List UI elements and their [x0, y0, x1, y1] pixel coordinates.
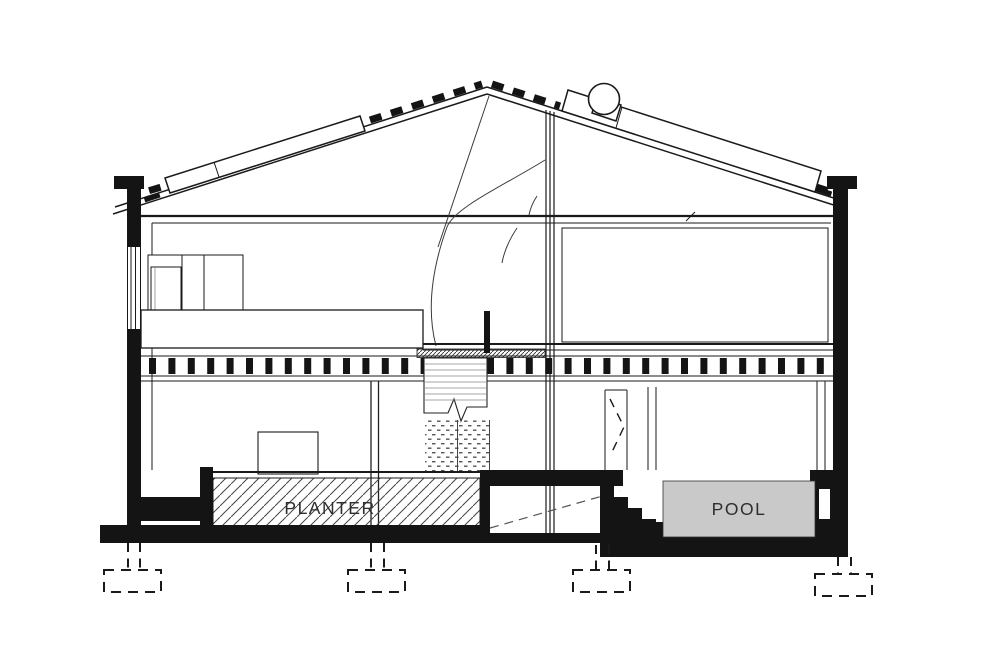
roof-left-bottom-chord: [113, 94, 487, 214]
pile-4: [815, 557, 872, 596]
skylight-panel-left: [165, 116, 365, 193]
balustrade-post: [484, 311, 490, 353]
wardrobe-door: [151, 267, 181, 310]
left-parapet-cap: [114, 176, 144, 189]
curve-small-arc: [502, 228, 517, 263]
pile-2: [348, 543, 405, 592]
right-parapet-cap: [827, 176, 857, 189]
door-swing-dashed: [610, 399, 624, 456]
upper-right-window: [562, 228, 828, 342]
pool: POOL: [600, 470, 838, 557]
pit-top-band: [480, 470, 623, 486]
chimney-cap: [589, 84, 620, 115]
curve-small-arc-upper: [529, 196, 537, 215]
pool-label: POOL: [712, 499, 767, 519]
skylight-panels: [144, 90, 832, 202]
pool-wall-notch: [819, 489, 830, 519]
slab: [100, 525, 645, 543]
left-wall: [127, 189, 141, 543]
right-wall: [833, 189, 848, 557]
landing-slab-hatch: [417, 349, 545, 358]
floor-edge-band: [141, 310, 423, 348]
left-footing-beam: [141, 497, 201, 521]
planter-label: PLANTER: [284, 498, 375, 518]
curve-straight-line: [438, 96, 489, 247]
curved-feature: [431, 96, 545, 346]
roof-battens-left-upper: [370, 84, 482, 120]
roof-battens-right-upper: [492, 84, 560, 106]
roof-right-bottom-chord: [487, 94, 843, 208]
pile-1: [104, 543, 161, 592]
section-drawing-canvas: PLANTER POOL: [0, 0, 1006, 659]
left-wall-window: [128, 247, 140, 329]
stair-section: [424, 358, 487, 421]
ceiling-line: [141, 212, 833, 223]
building-section: PLANTER POOL: [0, 0, 1006, 659]
bench: [258, 432, 318, 474]
stair-lower-flight-dotted: [425, 420, 489, 472]
pool-bottom: [645, 537, 838, 557]
pit-left-wall: [480, 470, 490, 533]
